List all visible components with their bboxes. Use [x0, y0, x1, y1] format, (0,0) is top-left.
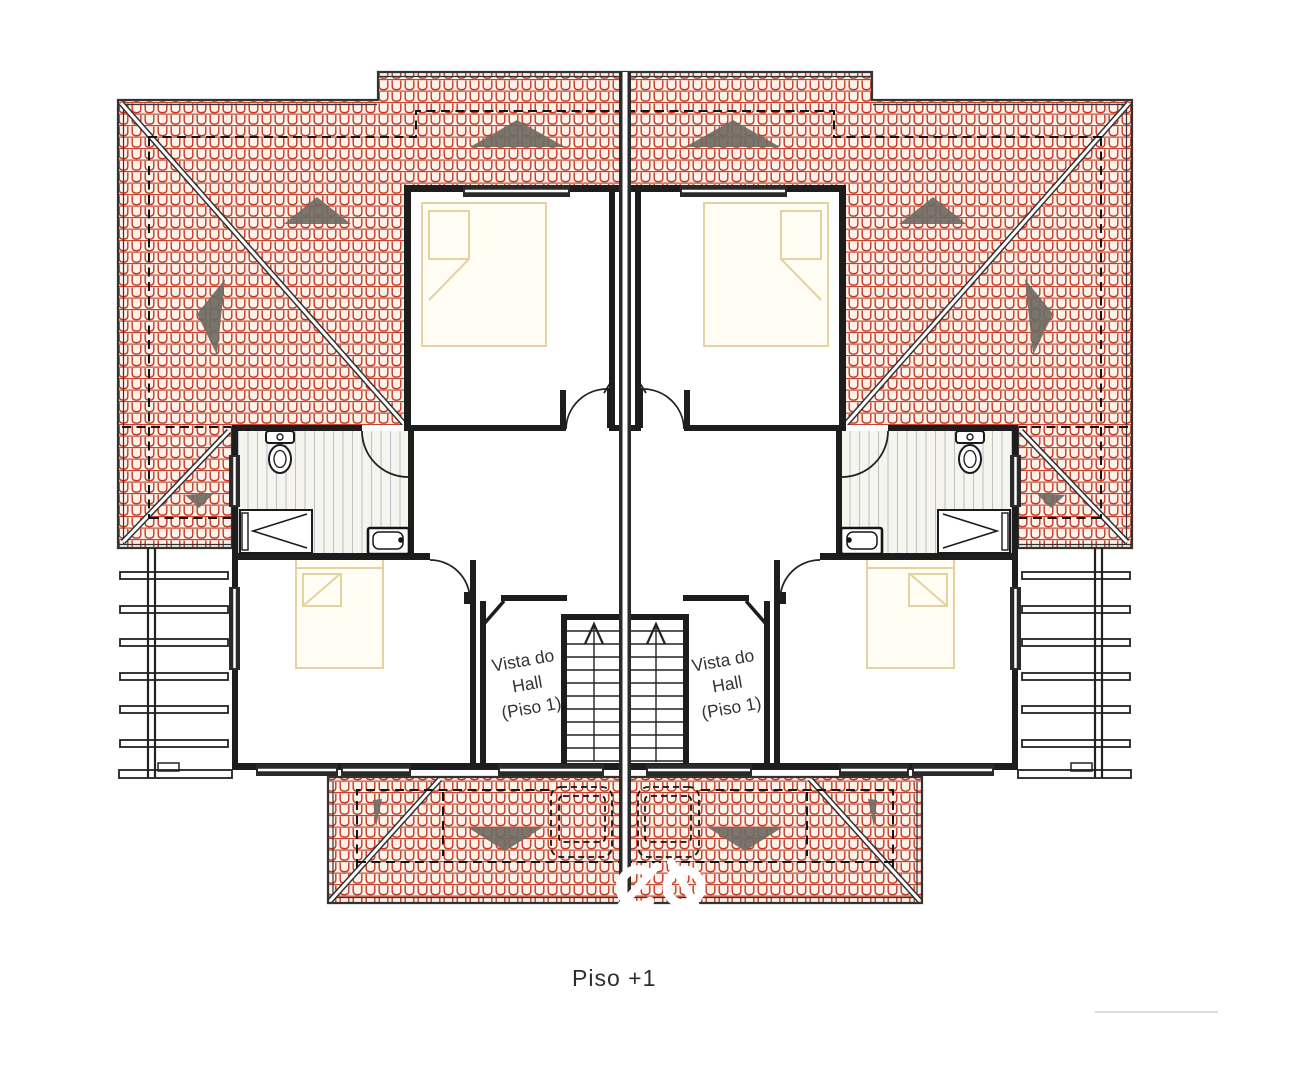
left-unit [118, 72, 625, 903]
floor-plan-sheet: Vista do Hall (Piso 1) Vista do Hall (Pi… [0, 0, 1310, 1080]
right-unit [625, 72, 1132, 903]
floor-title: Piso +1 [572, 965, 656, 991]
party-wall [619, 72, 631, 903]
floor-plan-drawing: Vista do Hall (Piso 1) Vista do Hall (Pi… [0, 0, 1310, 1080]
